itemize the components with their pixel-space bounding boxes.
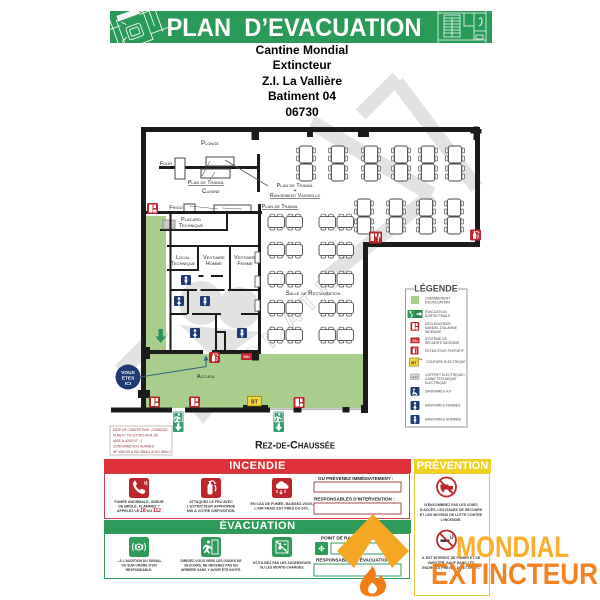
svg-text:L'EXTINCTEUR APPROPRIÉ: L'EXTINCTEUR APPROPRIÉ	[187, 504, 236, 509]
svg-text:SANITAIRES FEMMES: SANITAIRES FEMMES	[425, 404, 461, 408]
svg-text:MISE À JOUR N° : 1: MISE À JOUR N° : 1	[113, 439, 142, 443]
svg-text:CONFORME AUX NORMES :: CONFORME AUX NORMES :	[113, 445, 156, 449]
svg-text:BT: BT	[251, 400, 258, 406]
svg-text:Plan de Travail: Plan de Travail	[188, 180, 225, 186]
svg-text:VOUS: VOUS	[121, 370, 135, 376]
svg-text:Cuisine: Cuisine	[202, 189, 220, 195]
svg-text:Four: Four	[160, 161, 172, 167]
svg-text:Plonge: Plonge	[201, 141, 219, 147]
svg-text:ELECTRIQUE: ELECTRIQUE	[425, 381, 447, 385]
svg-text:N'UTILISEZ PAS LES ASCENSEURS: N'UTILISEZ PAS LES ASCENSEURS	[253, 561, 312, 565]
svg-text:ARRIÈRE SANS Y AVOIR ÉTÉ INVIT: ARRIÈRE SANS Y AVOIR ÉTÉ INVITÉ.	[181, 567, 241, 572]
svg-text:D'EVACUATION: D'EVACUATION	[425, 301, 450, 305]
svg-text:SECOURS, NE REVENEZ PAS EN: SECOURS, NE REVENEZ PAS EN	[184, 564, 238, 568]
svg-text:EXTINCTEUR: EXTINCTEUR	[431, 558, 598, 591]
svg-text:DATE DE CONCEPTION : 22/06/202: DATE DE CONCEPTION : 22/06/2020	[113, 428, 168, 432]
svg-text:Rez-de-Chaussée: Rez-de-Chaussée	[255, 439, 336, 451]
svg-text:...À L'AUDITION DU SIGNAL: ...À L'AUDITION DU SIGNAL	[116, 558, 161, 563]
svg-text:DIRIGEZ-VOUS VERS LES ISSUES D: DIRIGEZ-VOUS VERS LES ISSUES DE	[180, 559, 242, 563]
svg-text:Frigo: Frigo	[169, 205, 183, 211]
svg-text:ICI: ICI	[125, 381, 132, 387]
svg-text:OU LES MONTE-CHARGES.: OU LES MONTE-CHARGES.	[260, 566, 305, 570]
svg-text:Technique: Technique	[179, 223, 204, 229]
svg-text:RESPONSABLE.: RESPONSABLE.	[126, 568, 153, 572]
svg-text:OU PRÉVENEZ IMMÉDIATEMENT :: OU PRÉVENEZ IMMÉDIATEMENT :	[318, 474, 394, 481]
svg-text:RESPONSABLES D'INTERVENTION :: RESPONSABLES D'INTERVENTION :	[314, 497, 395, 502]
svg-text:MIS À VOTRE DISPOSITION.: MIS À VOTRE DISPOSITION.	[187, 508, 236, 513]
svg-text:ATTAQUEZ LE FEU AVEC: ATTAQUEZ LE FEU AVEC	[189, 500, 233, 504]
svg-text:COUPURE ELECTRIQUE: COUPURE ELECTRIQUE	[426, 360, 466, 364]
svg-text:Salle de Restauration: Salle de Restauration	[286, 291, 341, 297]
svg-text:SANITAIRES H.P: SANITAIRES H.P	[425, 390, 452, 394]
svg-text:EXTINCTEUR PORTATIF: EXTINCTEUR PORTATIF	[425, 349, 464, 353]
svg-text:Accueil: Accueil	[197, 374, 216, 380]
svg-text:OU SUR ORDRE D'UN: OU SUR ORDRE D'UN	[121, 564, 157, 568]
svg-text:Femme: Femme	[237, 261, 253, 267]
svg-text:Rangement Vaisselle: Rangement Vaisselle	[270, 193, 321, 199]
svg-text:SORTIE FINALE: SORTIE FINALE	[425, 314, 451, 318]
svg-text:Homme: Homme	[206, 261, 223, 267]
svg-text:NF X08-070 & ISO 3864-1 & ISO: NF X08-070 & ISO 3864-1 & ISO 3864-3	[113, 450, 171, 454]
svg-text:L'AIR FRAIS EST PRÈS DU SOL.: L'AIR FRAIS EST PRÈS DU SOL.	[254, 506, 309, 511]
svg-text:SÉCURITÉ INCENDIE: SÉCURITÉ INCENDIE	[425, 340, 460, 345]
svg-text:EN CAS DE FUMÉE, BAISSEZ-VOUS,: EN CAS DE FUMÉE, BAISSEZ-VOUS,	[250, 501, 313, 506]
svg-text:ETES: ETES	[122, 376, 135, 382]
svg-text:LÉGENDE: LÉGENDE	[414, 284, 458, 294]
svg-text:ELEC: ELEC	[412, 376, 419, 379]
svg-text:Plan de Travail: Plan de Travail	[262, 204, 299, 210]
svg-text:PLAN N° TO-CO7001-4074-101: PLAN N° TO-CO7001-4074-101	[113, 434, 159, 438]
svg-text:FUMÉE ANORMALE, ODEUR: FUMÉE ANORMALE, ODEUR	[114, 499, 164, 504]
svg-text:Technique: Technique	[171, 261, 196, 267]
svg-text:SANITAIRES HOMMES: SANITAIRES HOMMES	[425, 418, 462, 422]
svg-text:INCENDIE: INCENDIE	[425, 330, 442, 334]
svg-text:APPELEZ LE 18 OU 112: APPELEZ LE 18 OU 112	[117, 508, 161, 514]
